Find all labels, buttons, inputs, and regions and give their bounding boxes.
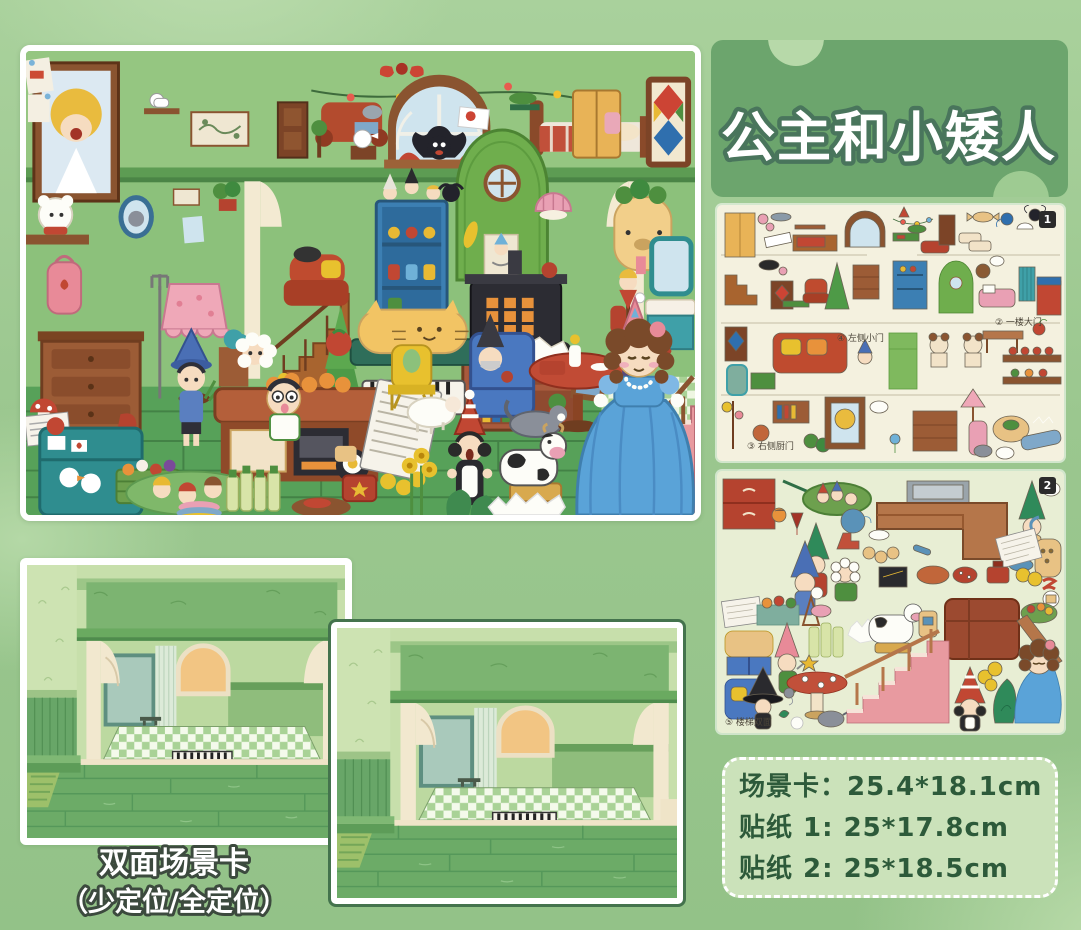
spec-scene-card-size: 场景卡：25.4*18.1cm bbox=[739, 767, 1041, 808]
scene-card-caption: 双面场景卡 （少定位/全定位） bbox=[16, 843, 332, 929]
sheet-1-label-main-door: ② 一楼大门 bbox=[995, 315, 1042, 328]
sheet-2-label-stairs: ⑤ 楼梯双面 bbox=[725, 715, 772, 728]
caption-line-2: （少定位/全定位） bbox=[61, 886, 287, 918]
product-poster: 公主和小矮人 bbox=[0, 0, 1081, 930]
sheet-1-label-left-door: ④ 左侧小门 bbox=[837, 331, 884, 344]
size-spec-panel: 场景卡：25.4*18.1cm 贴纸 1: 25*17.8cm 贴纸 2: 25… bbox=[722, 757, 1058, 898]
scene-card-back bbox=[328, 619, 686, 907]
sticker-sheet-1: 1 ④ 左侧小门 ② 一楼大门 ③ 右侧厨门 bbox=[717, 205, 1064, 461]
scene-card-back-art bbox=[337, 628, 677, 898]
main-scene-art bbox=[26, 51, 695, 515]
sheet-1-label-right-door: ③ 右侧厨门 bbox=[747, 439, 794, 452]
product-title: 公主和小矮人 bbox=[721, 106, 1057, 169]
caption-line-1: 双面场景卡 bbox=[99, 846, 249, 881]
scene-card-front bbox=[20, 558, 352, 845]
sticker-sheet-1-art bbox=[717, 205, 1064, 461]
spec-sticker-1-size: 贴纸 1: 25*17.8cm bbox=[739, 808, 1041, 849]
sticker-sheet-2: 2 ⑤ 楼梯双面 bbox=[717, 471, 1064, 733]
sticker-sheet-2-art bbox=[717, 471, 1064, 733]
main-scene-illustration bbox=[20, 45, 701, 521]
spec-sticker-2-size: 贴纸 2: 25*18.5cm bbox=[739, 849, 1041, 890]
sheet-2-badge: 2 bbox=[1039, 477, 1056, 494]
sheet-1-badge: 1 bbox=[1039, 211, 1056, 228]
scene-card-front-art bbox=[27, 565, 345, 838]
title-banner: 公主和小矮人 bbox=[711, 40, 1068, 197]
